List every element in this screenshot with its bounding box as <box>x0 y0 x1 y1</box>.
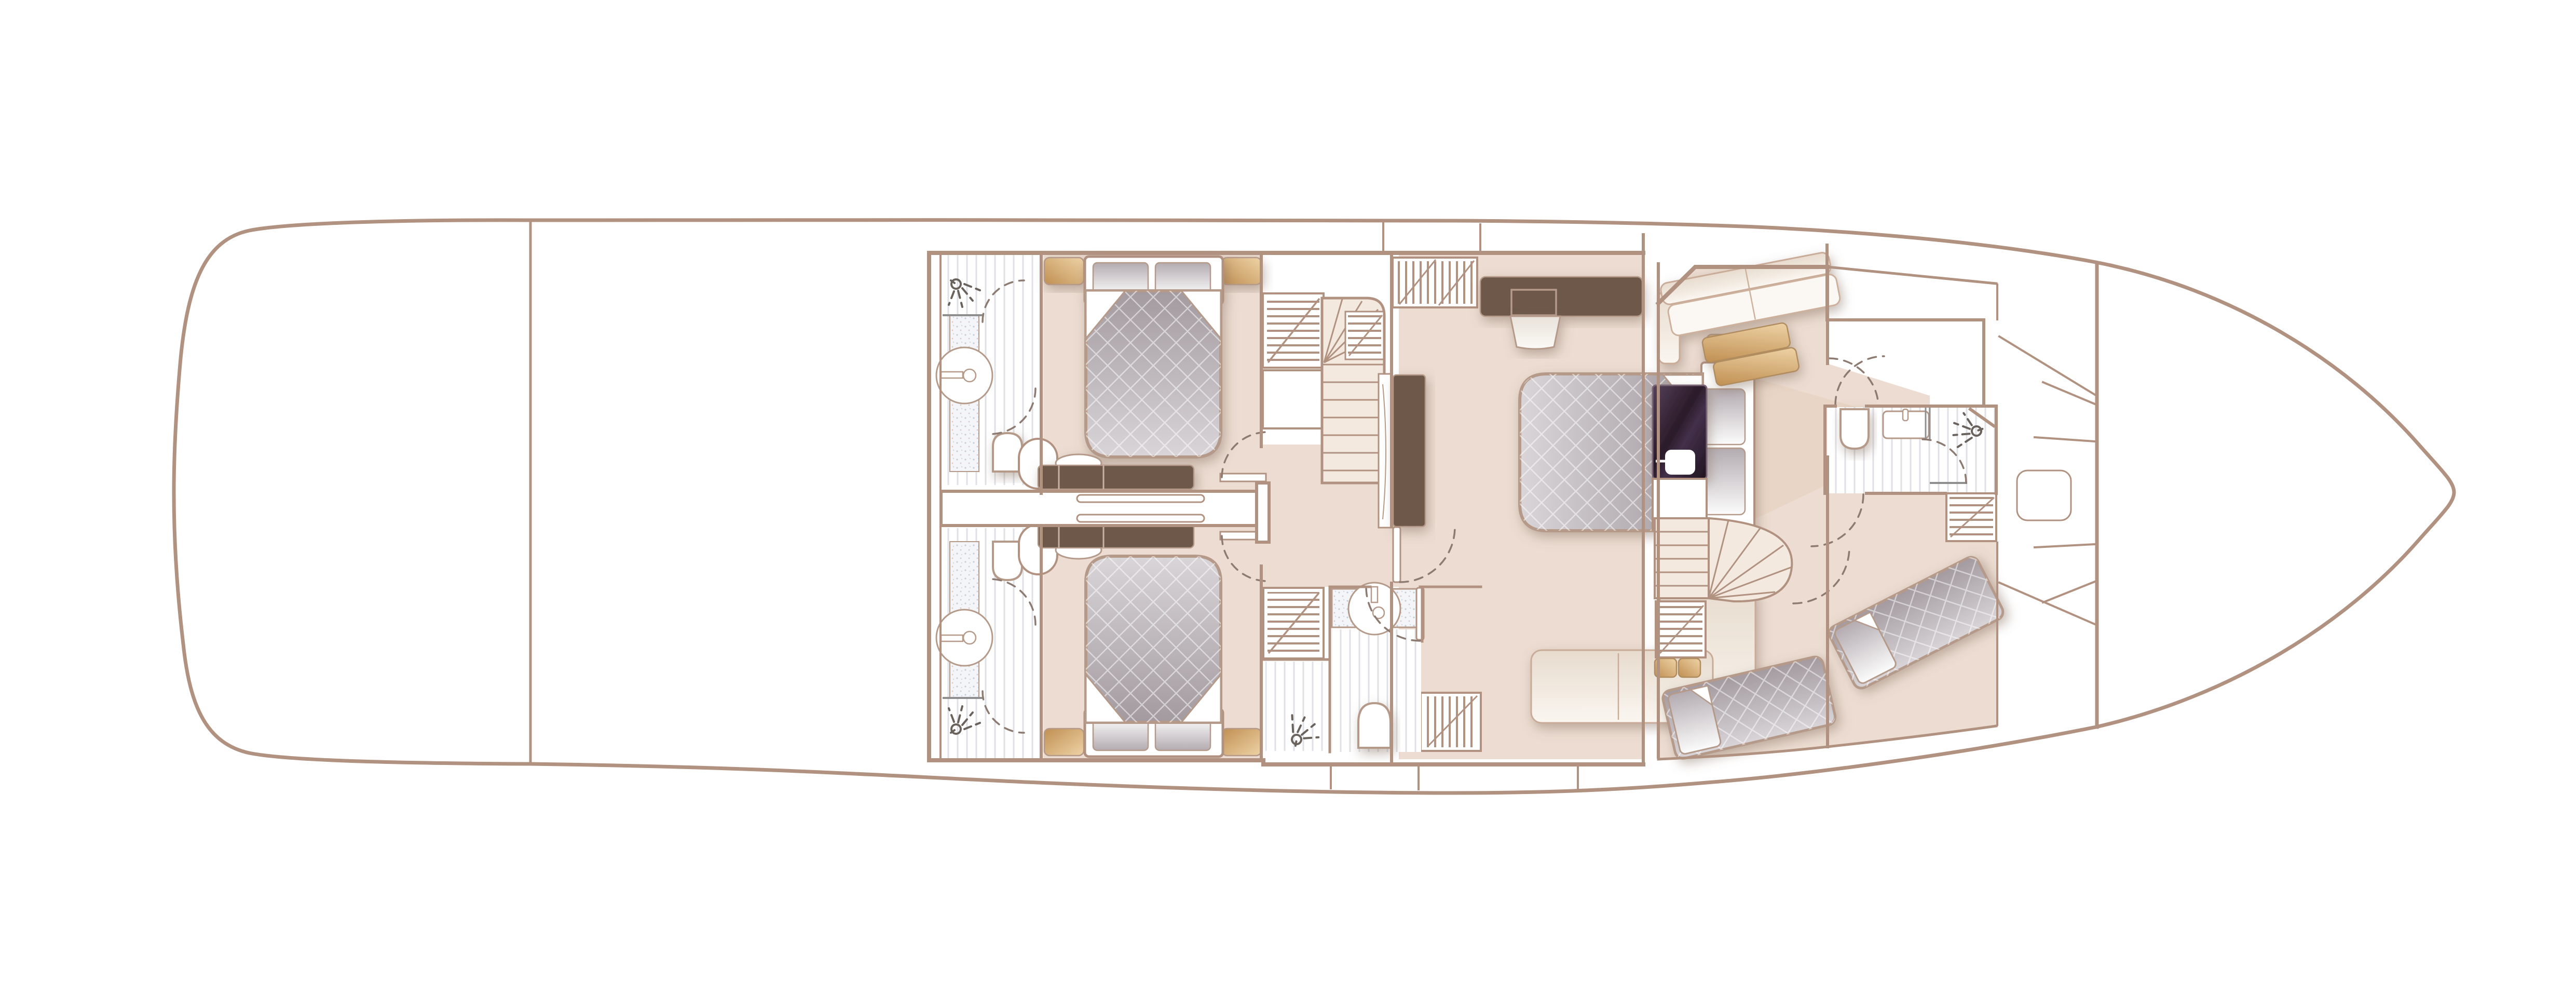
tv-panel <box>1393 375 1425 527</box>
stair-shelf <box>1345 312 1384 359</box>
port-cupboard <box>1263 370 1324 428</box>
toilet <box>1841 409 1869 449</box>
basin-faucet <box>941 372 963 378</box>
desk <box>1038 465 1194 489</box>
port-shelf-unit <box>1263 293 1324 368</box>
desk <box>1038 524 1194 548</box>
basin-faucet <box>1903 409 1908 421</box>
hanging-wardrobe-top <box>1393 258 1477 307</box>
galley-sink <box>1665 450 1695 475</box>
crew-shelf-unit <box>1656 601 1706 657</box>
starboard-shelf-unit <box>1263 588 1324 658</box>
floorplan-figure: Motor yacht lower deck floor plan, top-d… <box>0 0 2576 982</box>
bedside-table-right <box>1222 729 1261 756</box>
bedside-table-right <box>1222 258 1261 285</box>
basin-faucet <box>1371 587 1378 602</box>
lower-deck-floorplan <box>0 0 2576 982</box>
main-staircase <box>1322 298 1384 483</box>
bedside-table-left <box>1044 729 1084 756</box>
master-door-leaf <box>1393 527 1400 582</box>
forward-shelf-unit <box>1946 493 1996 541</box>
toilet <box>993 433 1022 472</box>
hanging-wardrobe-bottom <box>1421 693 1481 751</box>
dresser <box>1480 277 1642 316</box>
basin-faucet <box>941 635 963 641</box>
bedside-table-left <box>1044 258 1084 285</box>
dresser-stool <box>1510 316 1560 349</box>
toilet <box>1358 703 1391 748</box>
double-bed <box>1085 257 1223 457</box>
toilet <box>993 542 1022 580</box>
galley-counter <box>1653 385 1707 479</box>
wall-band-end <box>1257 483 1269 542</box>
sliding-door-leaf-port <box>1077 495 1204 502</box>
sliding-door-leaf-starboard <box>1077 515 1204 522</box>
mattress-quilt <box>1086 556 1221 722</box>
double-bed <box>1085 556 1223 757</box>
cabin-door-leaf <box>1220 474 1266 481</box>
mattress-quilt <box>1086 291 1221 457</box>
guest-bathroom-starboard <box>936 524 1057 759</box>
master-bed <box>1520 362 1754 543</box>
guest-bathroom-port <box>936 254 1057 489</box>
